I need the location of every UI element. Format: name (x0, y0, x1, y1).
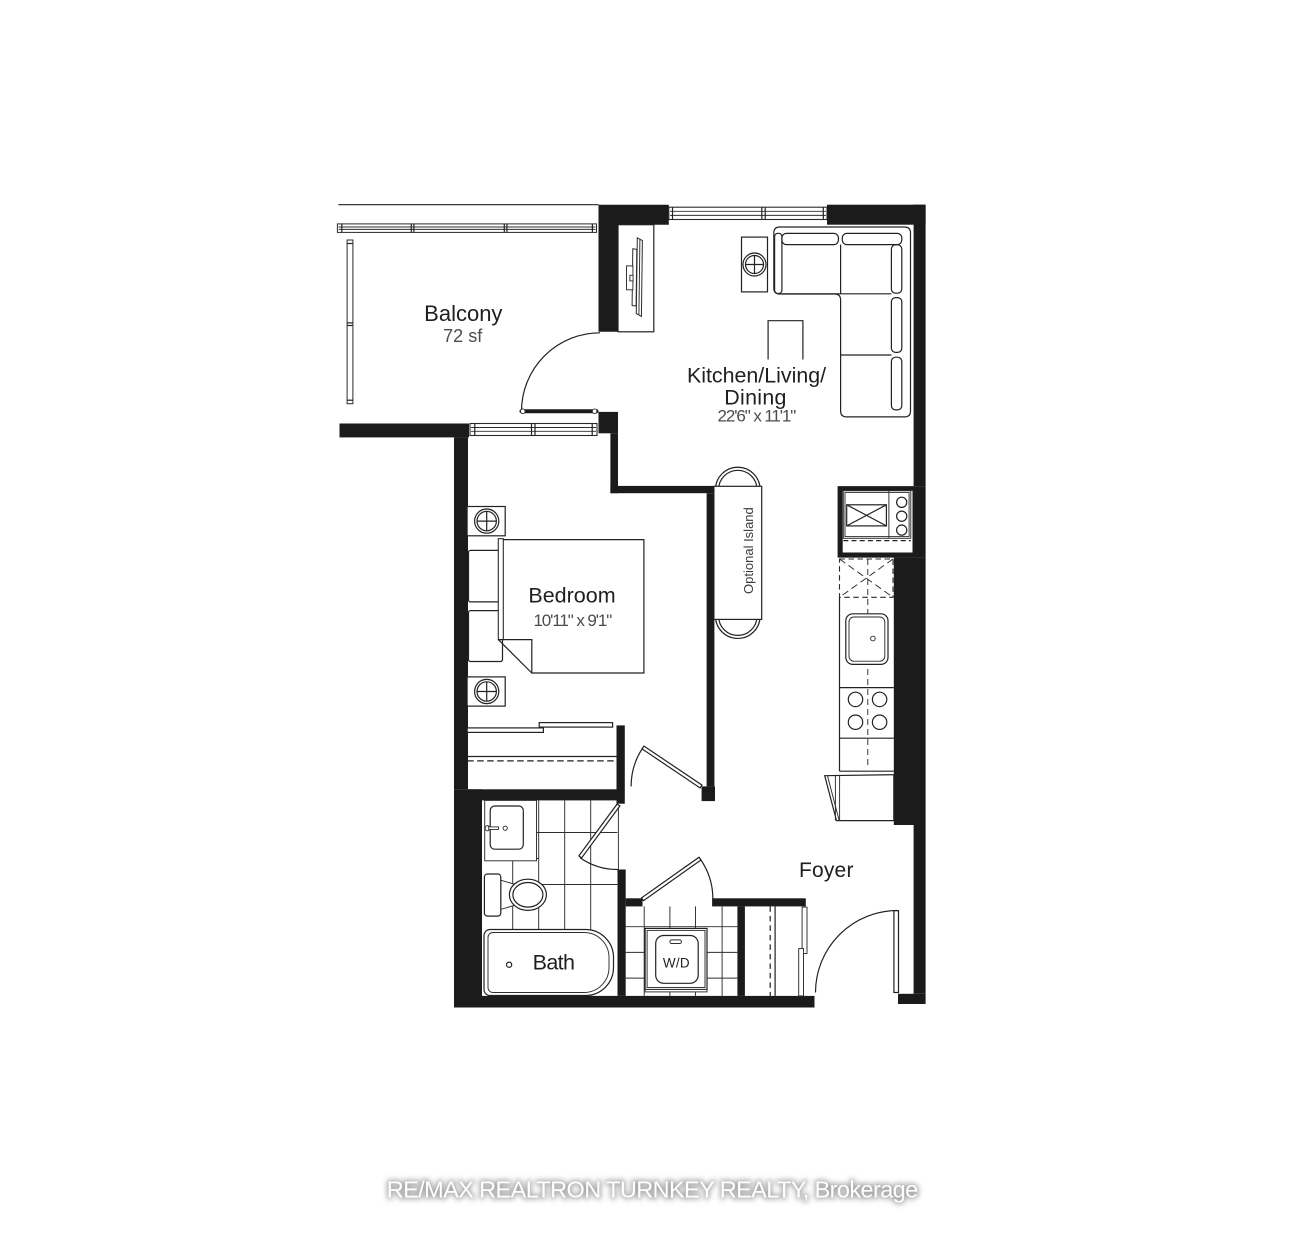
svg-text:22'6" x 11'1": 22'6" x 11'1" (718, 407, 797, 426)
svg-text:Kitchen/Living/: Kitchen/Living/ (687, 363, 826, 387)
svg-text:Balcony: Balcony (424, 301, 502, 326)
svg-text:Bedroom: Bedroom (528, 583, 615, 607)
svg-text:Bath: Bath (533, 951, 575, 975)
svg-text:72 sf: 72 sf (443, 326, 483, 346)
svg-text:10'11" x 9'1": 10'11" x 9'1" (533, 611, 612, 630)
svg-text:W/D: W/D (663, 955, 690, 970)
svg-text:Optional Island: Optional Island (741, 507, 756, 594)
svg-text:Foyer: Foyer (799, 859, 854, 882)
svg-text:RE/MAX REALTRON TURNKEY REALTY: RE/MAX REALTRON TURNKEY REALTY, Brokerag… (387, 1176, 918, 1202)
